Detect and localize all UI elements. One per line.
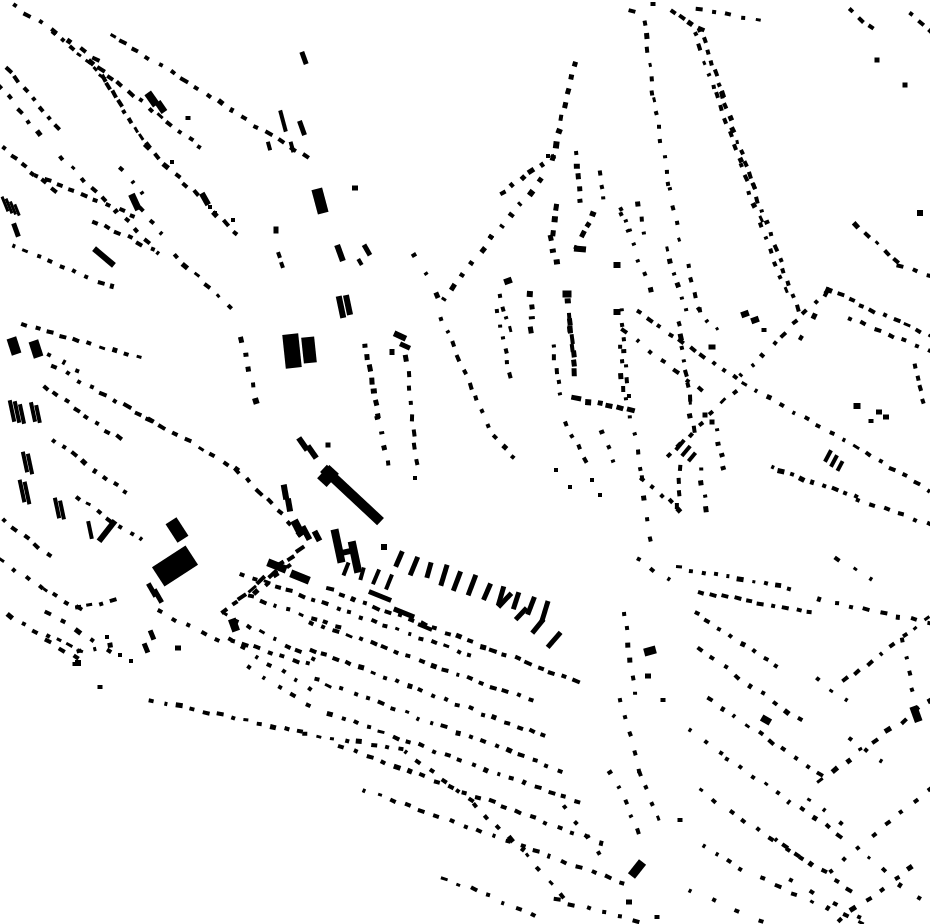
building-footprint [521,780,526,786]
building-footprint [357,664,364,670]
building-footprint [102,475,108,481]
building-footprint [282,333,301,368]
building-footprint [712,10,716,14]
building-footprint [908,11,914,17]
building-footprint [820,868,827,874]
building-footprint [138,537,143,542]
building-footprint [739,149,745,155]
building-footprint [760,209,764,213]
building-footprint [862,607,870,613]
building-footprint [611,459,616,463]
building-footprint [734,673,741,680]
building-footprint [164,701,168,706]
building-footprint [687,264,691,269]
building-footprint [907,670,912,675]
building-footprint [620,386,625,392]
building-footprint [698,421,704,427]
building-footprint [628,814,633,818]
building-footprint [703,506,708,512]
building-footprint [203,282,211,290]
building-footprint [428,767,435,774]
building-footprint [575,864,583,870]
building-footprint [856,498,861,503]
building-footprint [917,385,923,392]
building-footprint [655,915,660,919]
building-footprint [616,404,624,411]
building-footprint [697,646,704,652]
building-footprint [389,798,397,805]
building-footprint [438,316,443,321]
building-footprint [150,246,155,251]
building-footprint [831,486,839,492]
building-footprint [760,714,772,725]
building-footprint [554,259,560,265]
building-footprint [278,110,288,132]
building-footprint [97,280,104,286]
building-footprint [764,781,769,786]
building-footprint [416,716,421,721]
building-footprint [314,677,320,682]
building-footprint [377,729,385,734]
building-footprint [626,378,630,384]
building-footprint [638,467,643,472]
building-footprint [515,906,522,912]
building-footprint [714,327,719,332]
building-footprint [651,2,656,6]
building-footprint [614,309,621,315]
building-footprint [129,659,133,663]
building-footprint [636,258,641,263]
building-footprint [118,524,123,529]
building-footprint [563,421,568,427]
building-footprint [676,565,682,569]
building-footprint [501,443,508,450]
building-footprint [134,411,142,418]
building-footprint [285,498,293,512]
building-footprint [720,398,727,405]
building-footprint [636,308,643,314]
building-footprint [790,472,795,477]
building-footprint [676,321,682,327]
building-footprint [905,655,909,659]
building-footprint [405,739,411,744]
building-footprint [647,349,652,354]
building-footprint [632,432,637,436]
building-footprint [698,467,703,470]
building-footprint [637,771,643,777]
building-footprint [393,650,399,655]
building-footprint [216,711,223,716]
building-footprint [93,197,99,202]
building-footprint [495,824,501,830]
building-footprint [12,2,17,7]
building-footprint [408,632,412,637]
building-footprint [701,570,706,574]
building-footprint [625,229,630,234]
building-footprint [527,188,535,196]
building-footprint [23,12,32,19]
building-footprint [11,568,16,573]
building-footprint [710,420,715,425]
building-footprint [576,443,582,449]
building-footprint [687,452,697,463]
building-footprint [848,316,854,321]
building-footprint [716,627,721,632]
building-footprint [553,204,559,211]
building-footprint [568,485,572,489]
building-footprint [492,434,498,441]
building-footprint [298,592,306,598]
building-footprint [16,107,23,114]
building-footprint [492,833,497,838]
building-footprint [807,860,814,867]
building-footprint [118,38,127,45]
building-footprint [197,144,203,150]
building-footprint [390,349,395,355]
building-footprint [366,725,371,730]
building-footprint [431,749,436,754]
building-footprint [698,788,703,793]
building-footprint [311,598,316,603]
building-footprint [852,221,860,229]
building-footprint [124,217,131,224]
building-footprint [666,576,671,581]
building-footprint [165,120,173,128]
building-footprint [86,340,92,345]
building-footprint [135,241,143,248]
building-footprint [297,120,307,136]
building-footprint [440,723,448,729]
building-footprint [534,785,541,790]
building-footprint [175,703,182,708]
building-footprint [75,605,81,609]
building-footprint [371,617,378,623]
building-footprint [105,635,109,639]
building-footprint [708,655,715,661]
building-footprint [479,644,486,650]
building-footprint [403,750,408,755]
building-footprint [772,341,777,346]
building-footprint [501,336,506,340]
building-footprint [372,399,379,407]
building-footprint [474,795,481,801]
building-footprint [740,310,750,318]
building-footprint [58,155,64,161]
building-footprint [906,865,913,872]
building-footprint [179,76,188,83]
building-footprint [659,493,665,499]
building-footprint [489,647,498,654]
building-footprint [50,186,58,193]
building-footprint [292,658,300,664]
building-footprint [701,60,706,65]
building-footprint [414,758,422,765]
building-footprint [548,670,555,676]
building-footprint [51,438,57,444]
building-footprint [455,633,463,640]
building-footprint [590,478,594,482]
building-footprint [727,634,733,640]
building-footprint [250,382,255,387]
building-footprint [118,207,125,213]
building-footprint [478,681,484,686]
building-footprint [468,260,474,266]
building-footprint [574,245,586,252]
building-footprint [693,292,698,298]
building-footprint [455,354,461,362]
building-footprint [703,739,709,745]
building-footprint [131,46,139,53]
building-footprint [94,421,99,426]
building-footprint [852,567,857,572]
building-footprint [517,201,523,207]
building-footprint [364,354,370,360]
building-footprint [370,640,378,646]
building-footprint [880,611,888,617]
building-footprint [641,495,646,501]
building-footprint [262,676,267,681]
building-footprint [258,629,265,635]
building-footprint [245,366,251,372]
building-footprint [417,808,425,814]
building-footprint [822,483,827,488]
building-footprint [403,354,409,361]
building-footprint [59,264,65,270]
building-footprint [647,536,652,542]
building-footprint [665,246,669,252]
building-footprint [481,583,493,602]
building-footprint [917,210,923,216]
building-footprint [624,364,628,368]
building-footprint [130,213,136,219]
building-footprint [796,607,801,612]
building-footprint [916,895,921,901]
building-footprint [866,896,873,903]
building-footprint [76,379,82,385]
building-footprint [888,333,895,339]
building-footprint [884,726,892,734]
building-footprint [696,43,702,51]
building-footprint [797,716,803,722]
building-footprint [628,415,632,419]
building-footprint [632,918,640,923]
building-footprint [679,346,684,351]
building-footprint [787,586,792,591]
building-footprint [741,16,745,21]
building-footprint [266,662,272,668]
building-footprint [726,857,732,863]
building-footprint [84,274,89,280]
building-footprint [289,570,311,585]
building-footprint [113,208,119,214]
building-footprint [129,531,134,537]
building-footprint [878,459,883,464]
building-footprint [294,678,299,683]
building-footprint [24,575,30,581]
building-footprint [557,380,562,385]
building-footprint [698,480,703,486]
building-footprint [720,706,726,712]
building-footprint [456,757,462,762]
building-footprint [498,324,502,327]
building-footprint [501,900,505,904]
building-footprint [586,905,591,910]
building-footprint [688,397,692,404]
building-footprint [762,328,767,332]
building-footprint [302,153,310,160]
building-footprint [472,802,478,808]
building-footprint [44,638,52,645]
building-footprint [83,414,89,420]
building-footprint [623,798,629,804]
building-footprint [815,423,822,429]
building-footprint [52,592,59,599]
building-footprint [817,596,822,602]
building-footprint [632,242,636,246]
building-footprint [910,687,915,693]
building-footprint [677,478,681,484]
building-footprint [440,876,447,881]
building-footprint [530,618,545,635]
building-footprint [620,359,624,363]
building-footprint [688,432,694,439]
building-footprint [779,746,786,752]
building-footprint [590,211,597,218]
building-footprint [914,343,919,348]
building-footprint [782,605,789,611]
building-footprint [475,828,483,835]
building-footprint [115,433,123,440]
building-footprint [536,176,543,183]
building-footprint [711,798,717,804]
building-footprint [301,336,317,363]
building-footprint [307,686,313,692]
building-footprint [321,652,328,657]
building-footprint [875,58,880,63]
building-footprint [585,221,592,228]
building-footprint [121,109,127,115]
building-footprint [115,80,123,88]
building-footprint [650,90,654,95]
building-footprint [869,419,874,423]
building-footprint [23,534,30,541]
building-footprint [671,272,676,276]
building-footprint [622,349,627,353]
building-footprint [498,294,503,299]
building-footprint [350,596,356,602]
building-footprint [326,711,333,717]
building-footprint [116,99,123,107]
building-footprint [658,139,662,144]
building-footprint [715,428,720,432]
building-footprint [847,736,852,742]
building-footprint [406,767,413,773]
building-footprint [393,331,407,342]
building-footprint [255,487,264,496]
building-footprint [488,798,496,805]
building-footprint [642,231,646,234]
building-footprint [259,598,267,604]
building-footprint [148,698,154,703]
building-footprint [144,55,151,61]
building-footprint [96,65,105,73]
building-footprint [448,818,454,824]
building-footprint [394,763,402,769]
building-footprint [362,244,372,257]
building-footprint [568,902,575,907]
building-footprint [336,606,342,611]
building-footprint [499,223,505,229]
building-footprint [857,16,865,24]
building-footprint [526,596,538,616]
building-footprint [619,211,624,216]
building-footprint [295,648,303,654]
building-footprint [306,702,312,707]
building-footprint [621,612,626,616]
building-footprint [719,750,724,755]
building-footprint [740,640,746,646]
building-footprint [737,764,743,770]
building-footprint [75,368,80,373]
building-footprint [449,283,457,292]
building-footprint [137,134,144,142]
building-footprint [605,403,613,410]
building-footprint [575,173,581,179]
building-footprint [252,577,258,582]
building-footprint [717,82,723,88]
building-footprint [85,502,91,507]
building-footprint [760,876,766,881]
building-footprint [97,519,118,543]
building-footprint [900,638,905,644]
building-footprint [377,700,385,707]
building-footprint [305,661,310,666]
building-footprint [547,853,552,858]
building-footprint [316,735,322,740]
building-footprint [841,437,846,442]
building-footprint [600,184,605,189]
building-footprint [614,262,621,268]
building-footprint [455,788,461,794]
building-footprint [792,411,797,416]
building-footprint [506,747,513,753]
building-footprint [456,649,461,654]
building-footprint [299,51,308,65]
building-footprint [574,164,580,169]
building-footprint [769,232,774,237]
building-footprint [711,361,716,366]
building-footprint [524,660,533,667]
building-footprint [411,252,417,258]
building-footprint [510,454,516,460]
building-footprint [572,677,581,684]
building-footprint [383,675,388,680]
building-footprint [371,569,381,585]
building-footprint [231,600,238,607]
building-footprint [648,287,654,293]
building-footprint [675,282,681,288]
building-footprint [65,641,72,647]
building-footprint [127,90,136,99]
building-footprint [413,476,417,480]
building-footprint [216,294,221,299]
building-footprint [709,345,716,350]
building-footprint [21,322,28,328]
building-footprint [785,847,792,854]
building-footprint [344,659,351,665]
building-footprint [7,94,14,101]
building-footprint [619,373,624,379]
